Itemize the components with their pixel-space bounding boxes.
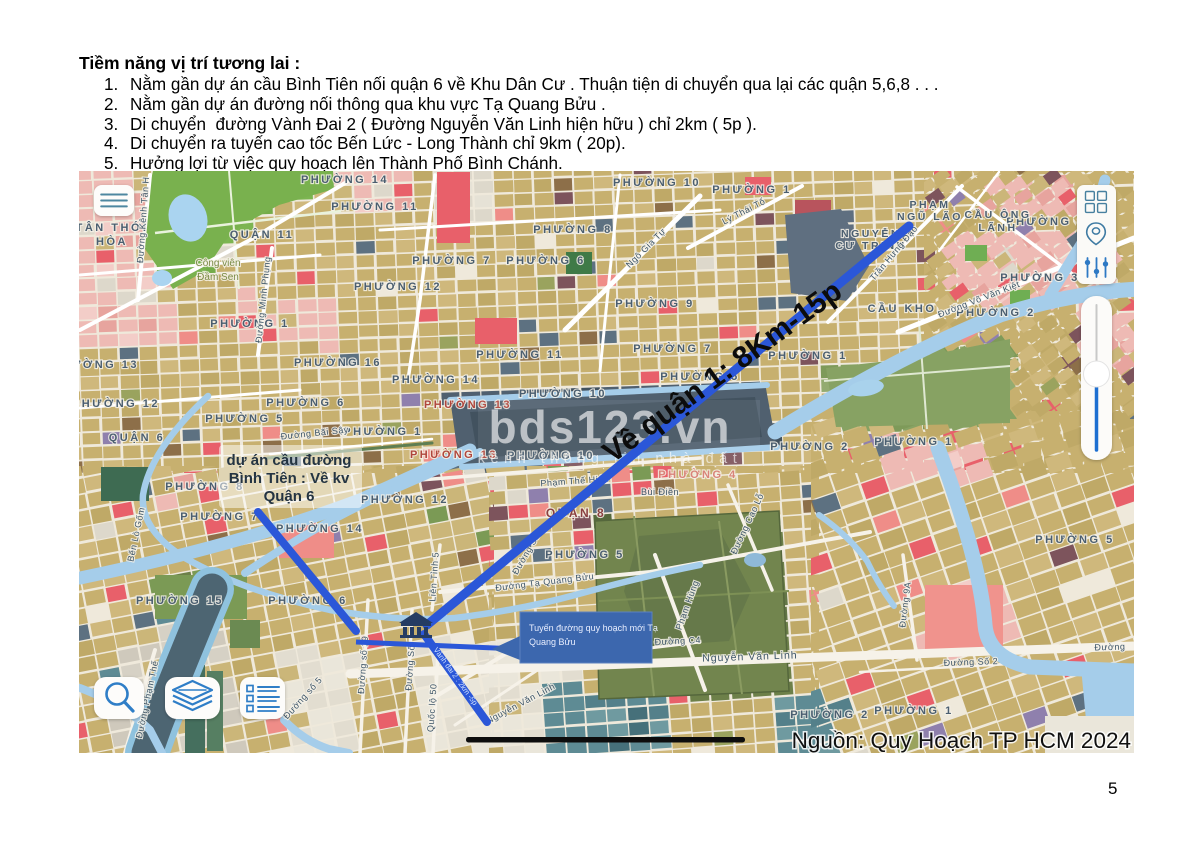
svg-text:PHƯỜNG 12: PHƯỜNG 12 — [354, 280, 442, 293]
svg-text:PHẠM: PHẠM — [910, 199, 951, 211]
svg-text:PHƯỜNG 5: PHƯỜNG 5 — [545, 548, 624, 561]
svg-text:PHƯỜNG 14: PHƯỜNG 14 — [301, 173, 389, 186]
svg-text:Bùi Điền: Bùi Điền — [641, 487, 679, 497]
svg-text:PHƯỜNG 1: PHƯỜNG 1 — [768, 349, 847, 362]
svg-text:PHƯỜNG 5: PHƯỜNG 5 — [205, 412, 284, 425]
svg-text:PHƯỜNG 13: PHƯỜNG 13 — [79, 358, 139, 371]
svg-text:PHƯỜNG 1: PHƯỜNG 1 — [712, 183, 791, 196]
svg-text:PHƯỜNG 6: PHƯỜNG 6 — [506, 254, 585, 267]
svg-text:PHƯỜNG 1: PHƯỜNG 1 — [874, 435, 953, 448]
svg-text:Đường Số 2: Đường Số 2 — [944, 656, 999, 668]
svg-text:Quang Bửu: Quang Bửu — [529, 637, 576, 647]
svg-text:PHƯỜNG 11: PHƯỜNG 11 — [331, 200, 418, 213]
svg-text:PHƯỜNG 4: PHƯỜNG 4 — [658, 468, 737, 481]
svg-text:Đường: Đường — [1094, 641, 1125, 652]
svg-text:PHƯỜNG 5: PHƯỜNG 5 — [1035, 533, 1114, 546]
svg-text:PHƯỜNG 1: PHƯỜNG 1 — [210, 317, 289, 330]
svg-text:Nguồn: Quy Hoạch TP HCM 2024: Nguồn: Quy Hoạch TP HCM 2024 — [792, 728, 1131, 753]
svg-text:Quận 6: Quận 6 — [264, 488, 315, 505]
svg-text:PHƯỜNG 7: PHƯỜNG 7 — [412, 254, 491, 267]
svg-text:PHƯỜNG 10: PHƯỜNG 10 — [519, 387, 607, 400]
svg-text:Bình Tiên : Về kv: Bình Tiên : Về kv — [229, 470, 350, 487]
svg-text:CẦU ÔNG: CẦU ÔNG — [964, 208, 1031, 221]
svg-text:Đầm Sen: Đầm Sen — [197, 271, 239, 283]
svg-text:PHƯỜNG 2: PHƯỜNG 2 — [770, 440, 849, 453]
svg-text:PHƯỜNG 16: PHƯỜNG 16 — [294, 356, 382, 369]
svg-text:PHƯỜNG 8: PHƯỜNG 8 — [533, 223, 612, 236]
svg-text:PHƯỜNG 7: PHƯỜNG 7 — [180, 510, 259, 523]
svg-text:dự án cầu đường: dự án cầu đường — [227, 452, 352, 469]
svg-text:HÒA: HÒA — [96, 235, 128, 248]
svg-text:NGŨ LÃO: NGŨ LÃO — [897, 210, 963, 223]
svg-text:PHƯỜNG 15: PHƯỜNG 15 — [136, 594, 224, 607]
svg-text:Công viên: Công viên — [195, 258, 240, 269]
svg-text:PHƯỜNG 12: PHƯỜNG 12 — [79, 397, 160, 410]
svg-text:PHƯỜNG 1: PHƯỜNG 1 — [343, 425, 422, 438]
svg-text:QUẬN 11: QUẬN 11 — [230, 228, 295, 241]
svg-text:PHƯỜNG 6: PHƯỜNG 6 — [266, 396, 345, 409]
svg-text:Tuyến đường quy hoạch mới Tạ: Tuyến đường quy hoạch mới Tạ — [529, 623, 658, 633]
svg-text:PHƯỜNG 11: PHƯỜNG 11 — [476, 348, 563, 361]
svg-text:PHƯỜNG 10: PHƯỜNG 10 — [613, 176, 701, 189]
svg-text:PHƯỜNG 12: PHƯỜNG 12 — [361, 493, 449, 506]
svg-text:CẦU KHO: CẦU KHO — [868, 302, 937, 315]
svg-text:PHƯỜNG 7: PHƯỜNG 7 — [633, 342, 712, 355]
svg-text:PHƯỜNG 14: PHƯỜNG 14 — [392, 373, 480, 386]
svg-text:PHƯỜNG 1: PHƯỜNG 1 — [874, 704, 953, 717]
svg-text:QUẬN 6: QUẬN 6 — [109, 431, 166, 444]
svg-text:PHƯỜNG 2: PHƯỜNG 2 — [790, 708, 869, 721]
svg-text:PHƯỜNG 14: PHƯỜNG 14 — [276, 522, 364, 535]
svg-text:PHƯỜNG 9: PHƯỜNG 9 — [615, 297, 694, 310]
svg-text:LÃNH: LÃNH — [978, 221, 1017, 234]
